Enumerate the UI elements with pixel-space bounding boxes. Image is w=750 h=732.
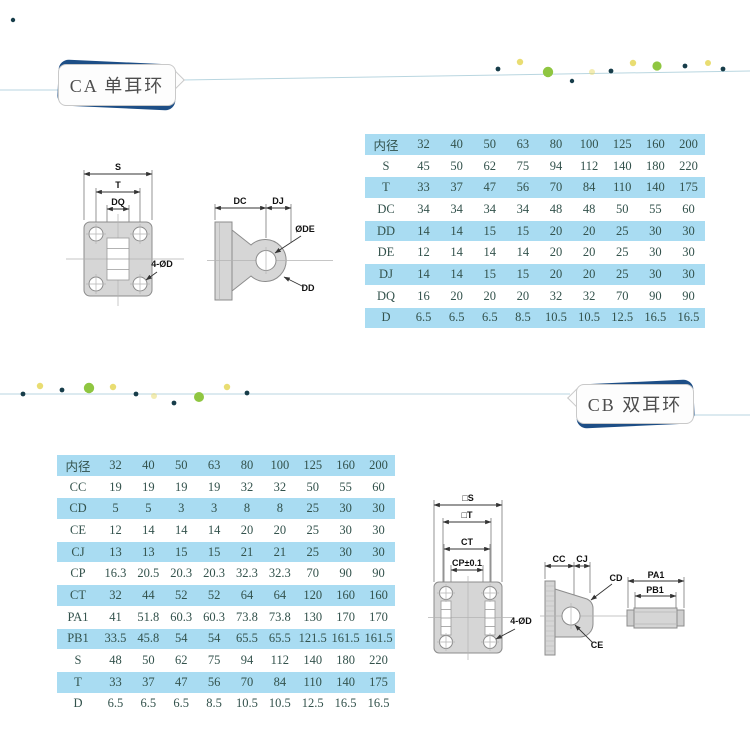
ca-side-view-diagram: DC DJ ØDE DD	[203, 192, 338, 307]
spec-header-row: 内径3240506380100125160200	[365, 134, 705, 155]
value-cell: 180	[329, 650, 362, 672]
value-cell: 16	[407, 285, 440, 307]
row-label-cell: T	[365, 177, 407, 199]
value-cell: 110	[606, 177, 639, 199]
value-cell: 16.3	[99, 563, 132, 585]
dim-label-ce: CE	[591, 640, 604, 650]
value-cell: 14	[407, 220, 440, 242]
value-cell: 50	[132, 650, 165, 672]
value-cell: 6.5	[440, 307, 473, 329]
dim-label-dj: DJ	[272, 196, 284, 206]
value-cell: 130	[296, 606, 329, 628]
row-label-cell: T	[57, 671, 99, 693]
value-cell: 20	[440, 285, 473, 307]
value-cell: 20	[539, 242, 572, 264]
catalog-page: CA 单耳环 S T DQ 4-ØD	[0, 0, 750, 732]
value-cell: 160	[329, 455, 362, 476]
value-cell: 14	[440, 264, 473, 286]
value-cell: 120	[296, 585, 329, 607]
value-cell: 25	[606, 220, 639, 242]
row-label-cell: DJ	[365, 264, 407, 286]
value-cell: 3	[165, 498, 198, 520]
value-cell: 16.5	[362, 693, 395, 715]
value-cell: 110	[296, 671, 329, 693]
title-card: CA 单耳环	[58, 64, 176, 106]
row-label-cell: PA1	[57, 606, 99, 628]
dim-label-de: ØDE	[295, 224, 315, 234]
value-cell: 65.5	[263, 628, 296, 650]
value-cell: 175	[672, 177, 705, 199]
value-cell: 55	[639, 199, 672, 221]
row-label-cell: DD	[365, 220, 407, 242]
spec-row: PB133.545.8545465.565.5121.5161.5161.5	[57, 628, 395, 650]
value-cell: 34	[473, 199, 506, 221]
value-cell: 50	[296, 476, 329, 498]
value-cell: 20.3	[165, 563, 198, 585]
value-cell: 20	[506, 285, 539, 307]
row-label-cell: CE	[57, 520, 99, 542]
value-cell: 90	[672, 285, 705, 307]
row-label-cell: CT	[57, 585, 99, 607]
value-cell: 41	[99, 606, 132, 628]
value-cell: 34	[407, 199, 440, 221]
value-cell: 220	[362, 650, 395, 672]
dim-label-cc: CC	[553, 554, 566, 564]
value-cell: 56	[198, 671, 231, 693]
value-cell: 70	[606, 285, 639, 307]
value-cell: 64	[263, 585, 296, 607]
value-cell: 14	[198, 520, 231, 542]
value-cell: 8	[231, 498, 264, 520]
value-cell: 30	[639, 220, 672, 242]
spec-header-row: 内径3240506380100125160200	[57, 455, 395, 476]
dim-label-dc: DC	[234, 196, 247, 206]
value-cell: 15	[473, 264, 506, 286]
value-cell: 80	[231, 455, 264, 476]
value-cell: 64	[231, 585, 264, 607]
value-cell: 33	[407, 177, 440, 199]
value-cell: 40	[440, 134, 473, 155]
value-cell: 52	[165, 585, 198, 607]
spec-row: S4850627594112140180220	[57, 650, 395, 672]
dim-label-s: S	[115, 162, 121, 172]
dim-label-s: □S	[462, 493, 473, 503]
ca-front-view-diagram: S T DQ 4-ØD	[60, 156, 190, 331]
value-cell: 140	[606, 155, 639, 177]
value-cell: 30	[639, 264, 672, 286]
cb-pin-diagram: PA1 PB1	[624, 571, 694, 633]
row-label-cell: S	[365, 155, 407, 177]
value-cell: 32	[539, 285, 572, 307]
spec-row: D6.56.56.58.510.510.512.516.516.5	[365, 307, 705, 329]
value-cell: 20	[573, 242, 606, 264]
value-cell: 50	[440, 155, 473, 177]
row-label-cell: 内径	[365, 134, 407, 155]
value-cell: 15	[506, 220, 539, 242]
value-cell: 50	[473, 134, 506, 155]
value-cell: 10.5	[573, 307, 606, 329]
row-label-cell: CC	[57, 476, 99, 498]
value-cell: 6.5	[165, 693, 198, 715]
value-cell: 90	[639, 285, 672, 307]
value-cell: 16.5	[639, 307, 672, 329]
cb-front-view-diagram: □S □T CT CP±0.1 4-ØD	[426, 488, 546, 670]
value-cell: 30	[672, 242, 705, 264]
spec-row: DJ141415152020253030	[365, 264, 705, 286]
value-cell: 70	[296, 563, 329, 585]
value-cell: 3	[198, 498, 231, 520]
row-label-cell: S	[57, 650, 99, 672]
row-label-cell: 内径	[57, 455, 99, 476]
value-cell: 30	[362, 541, 395, 563]
value-cell: 94	[539, 155, 572, 177]
ca-title-text: CA 单耳环	[70, 72, 165, 98]
value-cell: 48	[99, 650, 132, 672]
spec-row: DQ162020203232709090	[365, 285, 705, 307]
value-cell: 12	[99, 520, 132, 542]
value-cell: 160	[362, 585, 395, 607]
value-cell: 220	[672, 155, 705, 177]
value-cell: 25	[296, 520, 329, 542]
spec-row: PA14151.860.360.373.873.8130170170	[57, 606, 395, 628]
value-cell: 175	[362, 671, 395, 693]
value-cell: 60.3	[198, 606, 231, 628]
spec-row: CE121414142020253030	[57, 520, 395, 542]
value-cell: 44	[132, 585, 165, 607]
value-cell: 30	[329, 498, 362, 520]
dim-label-4-holes: 4-ØD	[510, 616, 532, 626]
row-label-cell: D	[57, 693, 99, 715]
value-cell: 19	[99, 476, 132, 498]
value-cell: 73.8	[263, 606, 296, 628]
value-cell: 32	[99, 455, 132, 476]
value-cell: 37	[132, 671, 165, 693]
value-cell: 33	[99, 671, 132, 693]
value-cell: 6.5	[407, 307, 440, 329]
value-cell: 16.5	[672, 307, 705, 329]
value-cell: 51.8	[132, 606, 165, 628]
value-cell: 140	[296, 650, 329, 672]
value-cell: 34	[440, 199, 473, 221]
dim-label-t: T	[115, 180, 121, 190]
value-cell: 56	[506, 177, 539, 199]
value-cell: 32	[231, 476, 264, 498]
value-cell: 90	[362, 563, 395, 585]
value-cell: 90	[329, 563, 362, 585]
ca-section-title: CA 单耳环	[58, 64, 176, 106]
value-cell: 25	[606, 242, 639, 264]
value-cell: 73.8	[231, 606, 264, 628]
dim-label-cp: CP±0.1	[452, 558, 482, 568]
spec-row: DE121414142020253030	[365, 242, 705, 264]
row-label-cell: DQ	[365, 285, 407, 307]
value-cell: 15	[506, 264, 539, 286]
dim-label-4-holes: 4-ØD	[151, 259, 173, 269]
value-cell: 70	[539, 177, 572, 199]
title-card: CB 双耳环	[576, 384, 694, 424]
value-cell: 6.5	[132, 693, 165, 715]
value-cell: 14	[132, 520, 165, 542]
value-cell: 52	[198, 585, 231, 607]
value-cell: 160	[329, 585, 362, 607]
row-label-cell: CP	[57, 563, 99, 585]
value-cell: 125	[296, 455, 329, 476]
value-cell: 15	[473, 220, 506, 242]
value-cell: 200	[672, 134, 705, 155]
value-cell: 20	[263, 520, 296, 542]
value-cell: 60.3	[165, 606, 198, 628]
value-cell: 20	[539, 264, 572, 286]
value-cell: 34	[506, 199, 539, 221]
value-cell: 20	[231, 520, 264, 542]
cb-section-title: CB 双耳环	[576, 384, 694, 424]
value-cell: 200	[362, 455, 395, 476]
value-cell: 30	[362, 498, 395, 520]
row-label-cell: CD	[57, 498, 99, 520]
value-cell: 50	[165, 455, 198, 476]
value-cell: 180	[639, 155, 672, 177]
value-cell: 170	[329, 606, 362, 628]
value-cell: 14	[440, 242, 473, 264]
value-cell: 47	[473, 177, 506, 199]
value-cell: 5	[99, 498, 132, 520]
value-cell: 125	[606, 134, 639, 155]
value-cell: 63	[198, 455, 231, 476]
value-cell: 25	[296, 498, 329, 520]
value-cell: 94	[231, 650, 264, 672]
value-cell: 15	[198, 541, 231, 563]
value-cell: 30	[329, 541, 362, 563]
value-cell: 25	[296, 541, 329, 563]
value-cell: 40	[132, 455, 165, 476]
value-cell: 140	[329, 671, 362, 693]
value-cell: 70	[231, 671, 264, 693]
ca-spec-table: 内径3240506380100125160200S455062759411214…	[365, 134, 705, 329]
value-cell: 30	[329, 520, 362, 542]
value-cell: 21	[231, 541, 264, 563]
value-cell: 47	[165, 671, 198, 693]
value-cell: 75	[506, 155, 539, 177]
value-cell: 161.5	[362, 628, 395, 650]
value-cell: 19	[198, 476, 231, 498]
dim-label-pa1: PA1	[648, 571, 665, 580]
value-cell: 14	[473, 242, 506, 264]
spec-row: S4550627594112140180220	[365, 155, 705, 177]
value-cell: 32	[407, 134, 440, 155]
cb-spec-table: 内径3240506380100125160200CC19191919323250…	[57, 455, 395, 715]
value-cell: 15	[165, 541, 198, 563]
value-cell: 20	[573, 264, 606, 286]
value-cell: 32.3	[231, 563, 264, 585]
value-cell: 32	[99, 585, 132, 607]
value-cell: 100	[263, 455, 296, 476]
value-cell: 32	[263, 476, 296, 498]
value-cell: 75	[198, 650, 231, 672]
row-label-cell: CJ	[57, 541, 99, 563]
spec-row: CC191919193232505560	[57, 476, 395, 498]
value-cell: 14	[165, 520, 198, 542]
value-cell: 60	[362, 476, 395, 498]
spec-row: DC343434344848505560	[365, 199, 705, 221]
value-cell: 12.5	[296, 693, 329, 715]
value-cell: 45	[407, 155, 440, 177]
value-cell: 62	[473, 155, 506, 177]
dim-label-t: □T	[462, 510, 473, 520]
value-cell: 19	[165, 476, 198, 498]
value-cell: 84	[263, 671, 296, 693]
spec-row: CJ131315152121253030	[57, 541, 395, 563]
spec-row: D6.56.56.58.510.510.512.516.516.5	[57, 693, 395, 715]
value-cell: 161.5	[329, 628, 362, 650]
value-cell: 84	[573, 177, 606, 199]
dim-label-dq: DQ	[111, 197, 125, 207]
dim-label-cj: CJ	[576, 554, 588, 564]
value-cell: 12	[407, 242, 440, 264]
row-label-cell: DE	[365, 242, 407, 264]
value-cell: 30	[639, 242, 672, 264]
value-cell: 100	[573, 134, 606, 155]
value-cell: 80	[539, 134, 572, 155]
value-cell: 20	[539, 220, 572, 242]
value-cell: 54	[165, 628, 198, 650]
value-cell: 8.5	[506, 307, 539, 329]
value-cell: 33.5	[99, 628, 132, 650]
spec-row: CP16.320.520.320.332.332.3709090	[57, 563, 395, 585]
dim-label-cd: CD	[610, 573, 623, 583]
value-cell: 55	[329, 476, 362, 498]
value-cell: 60	[672, 199, 705, 221]
value-cell: 8.5	[198, 693, 231, 715]
value-cell: 62	[165, 650, 198, 672]
value-cell: 20	[473, 285, 506, 307]
value-cell: 32.3	[263, 563, 296, 585]
value-cell: 65.5	[231, 628, 264, 650]
spec-row: CD553388253030	[57, 498, 395, 520]
value-cell: 14	[440, 220, 473, 242]
value-cell: 50	[606, 199, 639, 221]
value-cell: 48	[573, 199, 606, 221]
value-cell: 32	[573, 285, 606, 307]
dim-label-ct: CT	[461, 537, 473, 547]
spec-row: T333747567084110140175	[57, 671, 395, 693]
value-cell: 30	[672, 220, 705, 242]
value-cell: 6.5	[99, 693, 132, 715]
value-cell: 63	[506, 134, 539, 155]
value-cell: 140	[639, 177, 672, 199]
row-label-cell: DC	[365, 199, 407, 221]
value-cell: 10.5	[539, 307, 572, 329]
value-cell: 20.5	[132, 563, 165, 585]
value-cell: 30	[362, 520, 395, 542]
value-cell: 10.5	[263, 693, 296, 715]
value-cell: 112	[263, 650, 296, 672]
spec-row: CT324452526464120160160	[57, 585, 395, 607]
value-cell: 45.8	[132, 628, 165, 650]
dim-label-dd: DD	[302, 283, 315, 293]
value-cell: 20	[573, 220, 606, 242]
value-cell: 54	[198, 628, 231, 650]
value-cell: 170	[362, 606, 395, 628]
value-cell: 16.5	[329, 693, 362, 715]
value-cell: 121.5	[296, 628, 329, 650]
row-label-cell: D	[365, 307, 407, 329]
value-cell: 6.5	[473, 307, 506, 329]
value-cell: 13	[99, 541, 132, 563]
spec-row: DD141415152020253030	[365, 220, 705, 242]
value-cell: 14	[506, 242, 539, 264]
value-cell: 160	[639, 134, 672, 155]
value-cell: 20.3	[198, 563, 231, 585]
value-cell: 10.5	[231, 693, 264, 715]
value-cell: 12.5	[606, 307, 639, 329]
value-cell: 8	[263, 498, 296, 520]
value-cell: 19	[132, 476, 165, 498]
value-cell: 14	[407, 264, 440, 286]
dim-label-pb1: PB1	[646, 585, 664, 595]
value-cell: 30	[672, 264, 705, 286]
value-cell: 25	[606, 264, 639, 286]
value-cell: 21	[263, 541, 296, 563]
row-label-cell: PB1	[57, 628, 99, 650]
value-cell: 5	[132, 498, 165, 520]
cb-title-text: CB 双耳环	[588, 391, 683, 417]
value-cell: 112	[573, 155, 606, 177]
spec-row: T333747567084110140175	[365, 177, 705, 199]
value-cell: 37	[440, 177, 473, 199]
value-cell: 13	[132, 541, 165, 563]
value-cell: 48	[539, 199, 572, 221]
